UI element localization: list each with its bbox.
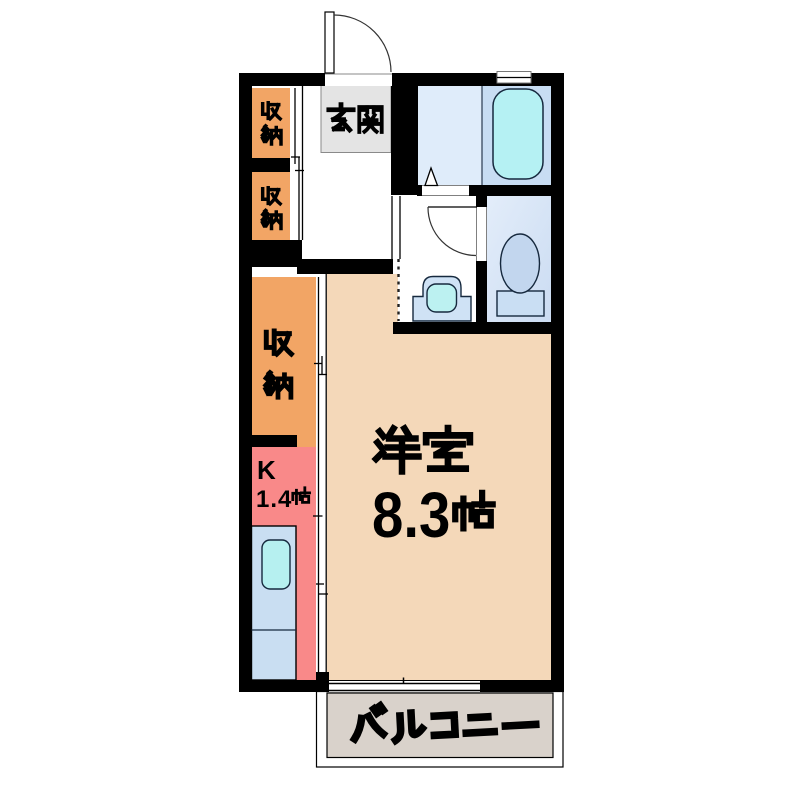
svg-text:1.4: 1.4 bbox=[256, 486, 292, 513]
svg-text:8.3: 8.3 bbox=[372, 479, 450, 551]
svg-text:K: K bbox=[257, 455, 276, 485]
